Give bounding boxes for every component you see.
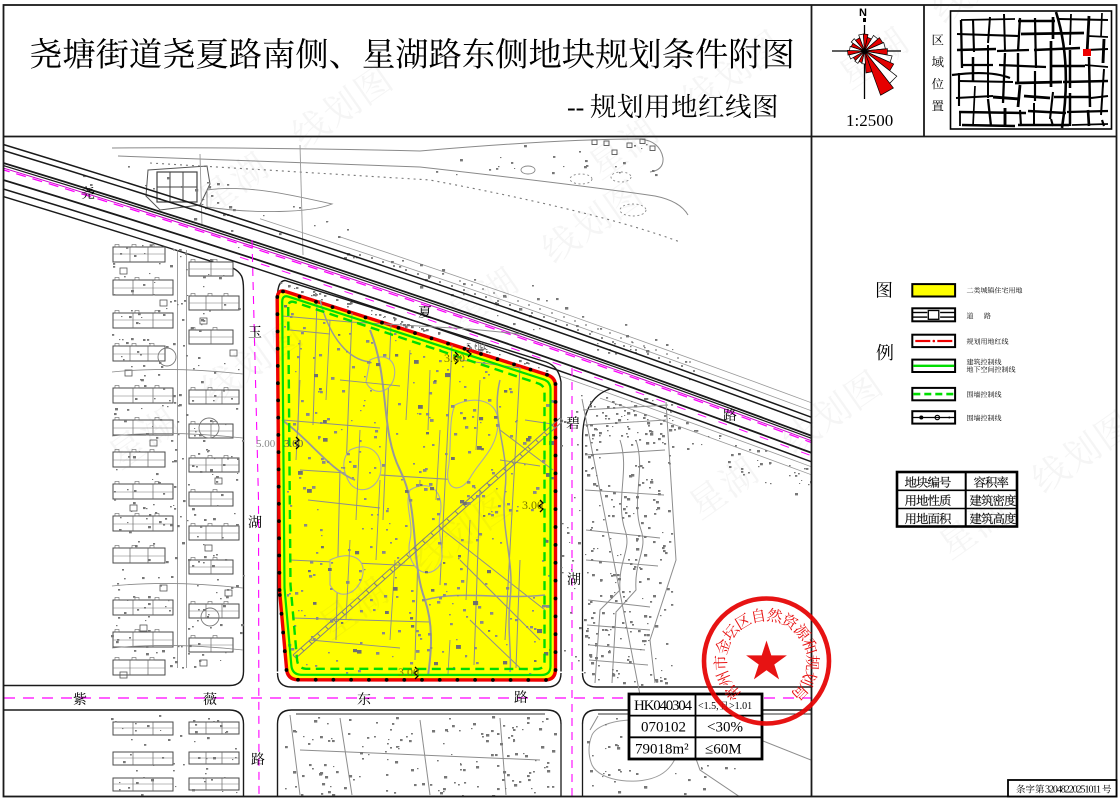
svg-text:79018m²: 79018m² xyxy=(635,742,689,758)
svg-text:1:2500: 1:2500 xyxy=(846,111,893,130)
svg-text:>1.01: >1.01 xyxy=(729,701,752,712)
svg-text:HK040304: HK040304 xyxy=(634,698,693,714)
svg-text:--: -- xyxy=(567,93,584,122)
svg-text:5.00: 5.00 xyxy=(256,438,276,450)
svg-text:N: N xyxy=(859,7,867,19)
svg-text:<30%: <30% xyxy=(707,720,743,736)
svg-text:3.00: 3.00 xyxy=(398,665,419,679)
svg-text:32048220251011: 32048220251011 xyxy=(1045,785,1101,796)
svg-text:3.00: 3.00 xyxy=(444,351,465,365)
svg-text:070102: 070102 xyxy=(641,720,686,736)
svg-text:3.00: 3.00 xyxy=(284,438,304,450)
svg-text:3.00: 3.00 xyxy=(522,498,543,512)
svg-text:<1.5,: <1.5, xyxy=(698,701,719,712)
svg-text:≤60M: ≤60M xyxy=(705,742,742,758)
